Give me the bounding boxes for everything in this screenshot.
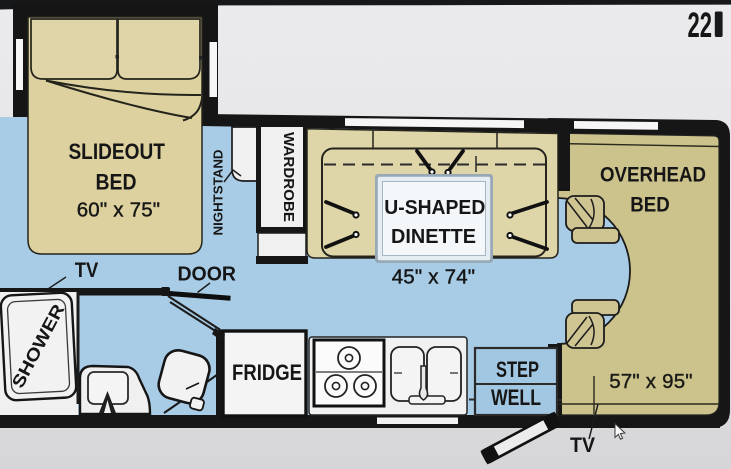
svg-text:45" x 74": 45" x 74" xyxy=(392,266,476,289)
svg-text:22: 22 xyxy=(688,5,713,45)
svg-text:DINETTE: DINETTE xyxy=(391,226,476,248)
svg-text:TV: TV xyxy=(75,259,99,282)
svg-text:57" x 95": 57" x 95" xyxy=(609,370,693,393)
svg-text:WELL: WELL xyxy=(491,385,541,410)
svg-text:NIGHTSTAND: NIGHTSTAND xyxy=(211,150,226,236)
svg-text:BED: BED xyxy=(96,170,137,195)
svg-text:TV: TV xyxy=(570,434,595,457)
svg-text:BED: BED xyxy=(630,193,670,217)
svg-text:U-SHAPED: U-SHAPED xyxy=(384,197,485,219)
svg-text:DOOR: DOOR xyxy=(177,264,236,286)
svg-text:60" x 75": 60" x 75" xyxy=(77,199,161,222)
svg-text:OVERHEAD: OVERHEAD xyxy=(600,163,706,187)
svg-text:SLIDEOUT: SLIDEOUT xyxy=(68,139,165,164)
svg-text:STEP: STEP xyxy=(496,357,539,382)
svg-text:FRIDGE: FRIDGE xyxy=(232,360,302,385)
svg-text:WARDROBE: WARDROBE xyxy=(280,132,296,222)
